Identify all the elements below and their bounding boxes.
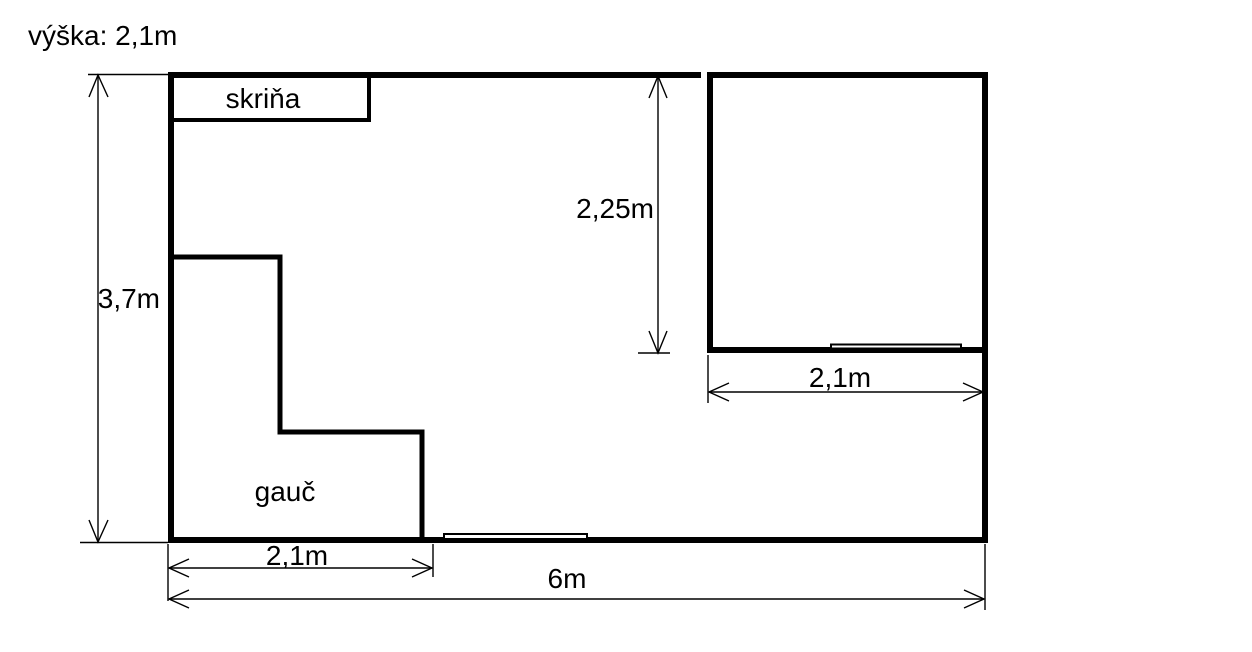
floor-plan-canvas: výška: 2,1m skriňa gauč 3,7m 2,25m 2,1m [0,0,1252,652]
couch-width-label: 2,1m [266,540,328,571]
floor-plan-page: výška: 2,1m skriňa gauč 3,7m 2,25m 2,1m [0,0,1252,652]
inner-room-width-label: 2,1m [809,362,871,393]
top-wall-gap [701,71,707,79]
wardrobe-label: skriňa [226,83,301,114]
couch-label: gauč [255,476,316,507]
room-width-label: 6m [548,563,587,594]
bottom-wall-door-marking [444,534,587,539]
inner-room-door-marking [831,345,961,349]
inner-room-depth-label: 2,25m [576,193,654,224]
room-depth-label: 3,7m [98,283,160,314]
ceiling-height-note: výška: 2,1m [28,20,177,51]
